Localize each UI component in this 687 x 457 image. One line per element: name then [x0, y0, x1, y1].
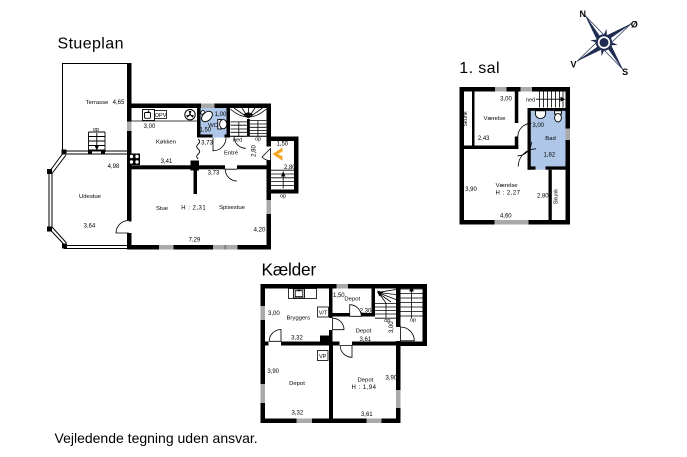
- svg-text:1. sal: 1. sal: [459, 60, 500, 77]
- svg-text:Bryggers: Bryggers: [287, 316, 311, 322]
- svg-text:Depot: Depot: [344, 297, 360, 303]
- svg-text:2,80: 2,80: [252, 145, 258, 157]
- svg-text:4,20: 4,20: [254, 228, 266, 234]
- svg-text:3,00: 3,00: [532, 123, 544, 129]
- svg-text:Vejledende tegning uden ansvar: Vejledende tegning uden ansvar.: [55, 430, 258, 446]
- svg-text:1,50: 1,50: [276, 141, 288, 147]
- svg-text:3,00: 3,00: [144, 124, 156, 130]
- svg-text:4,65: 4,65: [113, 100, 125, 106]
- svg-text:Terrasse: Terrasse: [86, 100, 109, 106]
- svg-text:3,00: 3,00: [268, 311, 280, 317]
- svg-text:Spisestue: Spisestue: [219, 205, 246, 211]
- svg-text:ned: ned: [233, 138, 242, 144]
- svg-text:H : 2,31: H : 2,31: [181, 206, 206, 212]
- svg-text:H : 1,94: H : 1,94: [351, 385, 376, 391]
- svg-text:Skunk: Skunk: [463, 111, 469, 127]
- svg-text:N: N: [580, 9, 587, 19]
- svg-text:2,30: 2,30: [360, 308, 372, 314]
- svg-text:op: op: [93, 127, 99, 133]
- svg-text:Stueplan: Stueplan: [58, 36, 124, 53]
- svg-text:S: S: [622, 67, 628, 77]
- svg-text:2,80: 2,80: [537, 194, 549, 200]
- svg-text:V/T: V/T: [319, 311, 328, 317]
- svg-text:7,29: 7,29: [189, 238, 201, 244]
- svg-text:3,90: 3,90: [465, 187, 477, 193]
- svg-text:op: op: [280, 194, 286, 200]
- svg-text:H : 2,27: H : 2,27: [495, 191, 520, 197]
- svg-text:op: op: [255, 137, 261, 143]
- svg-text:3,61: 3,61: [361, 412, 373, 418]
- svg-text:Værelse: Værelse: [496, 183, 519, 189]
- svg-text:3,32: 3,32: [292, 411, 304, 417]
- svg-text:4,60: 4,60: [500, 213, 512, 219]
- svg-text:Depot: Depot: [356, 329, 372, 335]
- svg-text:3,00: 3,00: [500, 97, 512, 103]
- svg-text:3,41: 3,41: [161, 159, 173, 165]
- svg-text:Depot: Depot: [289, 381, 305, 387]
- svg-text:1,50: 1,50: [199, 128, 211, 134]
- svg-text:2,43: 2,43: [478, 136, 490, 142]
- svg-text:3,64: 3,64: [84, 224, 96, 230]
- svg-text:Udestue: Udestue: [79, 194, 102, 200]
- svg-text:Kælder: Kælder: [262, 259, 317, 279]
- svg-text:V: V: [570, 60, 576, 70]
- svg-text:VP: VP: [319, 354, 327, 360]
- svg-text:1,00: 1,00: [215, 112, 227, 118]
- svg-text:Stue: Stue: [156, 206, 169, 212]
- svg-text:4,98: 4,98: [108, 164, 120, 170]
- svg-text:ned: ned: [526, 98, 535, 104]
- svg-text:3,73: 3,73: [208, 171, 220, 177]
- svg-text:Depot: Depot: [358, 378, 374, 384]
- svg-text:op: op: [410, 318, 416, 324]
- svg-text:3,73: 3,73: [201, 141, 213, 147]
- svg-text:3,90: 3,90: [267, 369, 279, 375]
- svg-text:Køkken: Køkken: [156, 140, 176, 146]
- svg-text:Ø: Ø: [631, 20, 638, 30]
- svg-text:Værelse: Værelse: [484, 116, 507, 122]
- svg-text:1,82: 1,82: [544, 152, 556, 158]
- svg-text:Skunk: Skunk: [554, 189, 560, 205]
- svg-text:3,90: 3,90: [385, 376, 397, 382]
- svg-text:3,00: 3,00: [389, 321, 395, 333]
- svg-text:3,32: 3,32: [291, 335, 303, 341]
- svg-text:Entré: Entré: [224, 151, 239, 157]
- svg-text:OPV: OPV: [155, 113, 167, 119]
- svg-text:Bad: Bad: [545, 136, 555, 142]
